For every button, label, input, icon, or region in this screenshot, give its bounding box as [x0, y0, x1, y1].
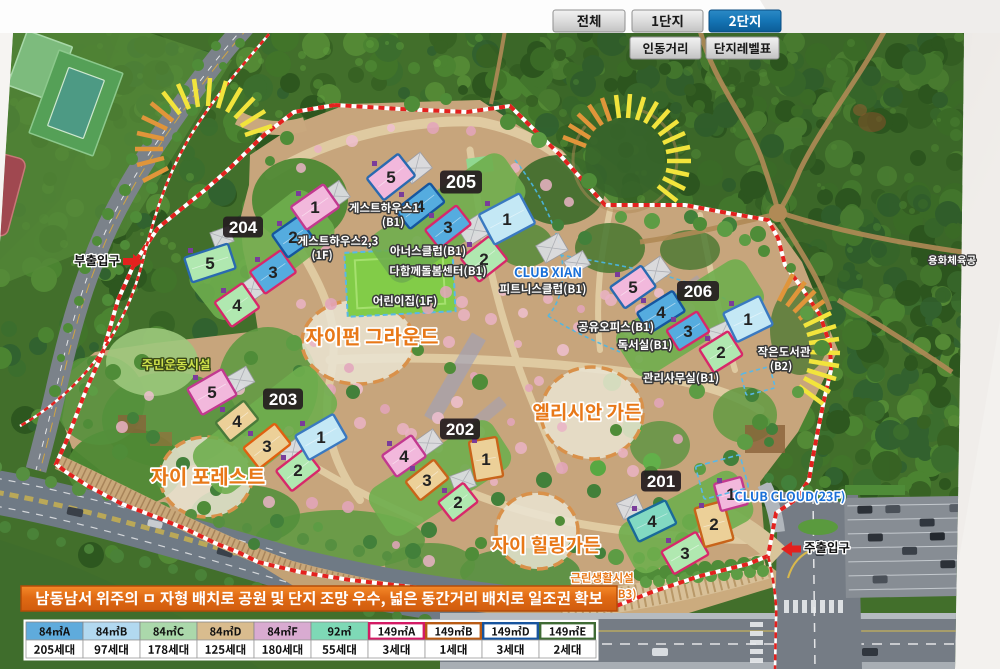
- svg-text:203: 203: [269, 390, 297, 409]
- svg-text:1: 1: [502, 210, 511, 229]
- svg-text:1: 1: [481, 450, 490, 469]
- svg-text:204: 204: [229, 218, 258, 237]
- svg-text:4: 4: [647, 512, 657, 531]
- svg-text:3: 3: [268, 263, 277, 282]
- svg-text:1: 1: [310, 198, 319, 217]
- svg-text:4: 4: [656, 303, 666, 322]
- svg-text:2: 2: [293, 461, 302, 480]
- svg-text:3: 3: [422, 471, 431, 490]
- svg-text:202: 202: [446, 420, 474, 439]
- svg-text:201: 201: [647, 472, 675, 491]
- svg-text:3: 3: [683, 322, 692, 341]
- svg-text:1: 1: [316, 428, 325, 447]
- svg-text:2: 2: [709, 515, 718, 534]
- svg-text:2: 2: [716, 343, 725, 362]
- svg-text:5: 5: [205, 254, 214, 273]
- svg-text:2: 2: [453, 493, 462, 512]
- svg-text:3: 3: [262, 437, 271, 456]
- svg-text:5: 5: [386, 168, 395, 187]
- svg-text:1: 1: [743, 310, 752, 329]
- svg-text:5: 5: [628, 278, 637, 297]
- svg-text:206: 206: [684, 282, 712, 301]
- svg-text:5: 5: [207, 383, 216, 402]
- svg-text:2: 2: [288, 228, 297, 247]
- svg-text:205: 205: [446, 172, 476, 192]
- svg-text:4: 4: [399, 447, 409, 466]
- svg-text:3: 3: [680, 544, 689, 563]
- svg-text:3: 3: [443, 218, 452, 237]
- svg-text:4: 4: [232, 412, 242, 431]
- svg-text:4: 4: [232, 296, 242, 315]
